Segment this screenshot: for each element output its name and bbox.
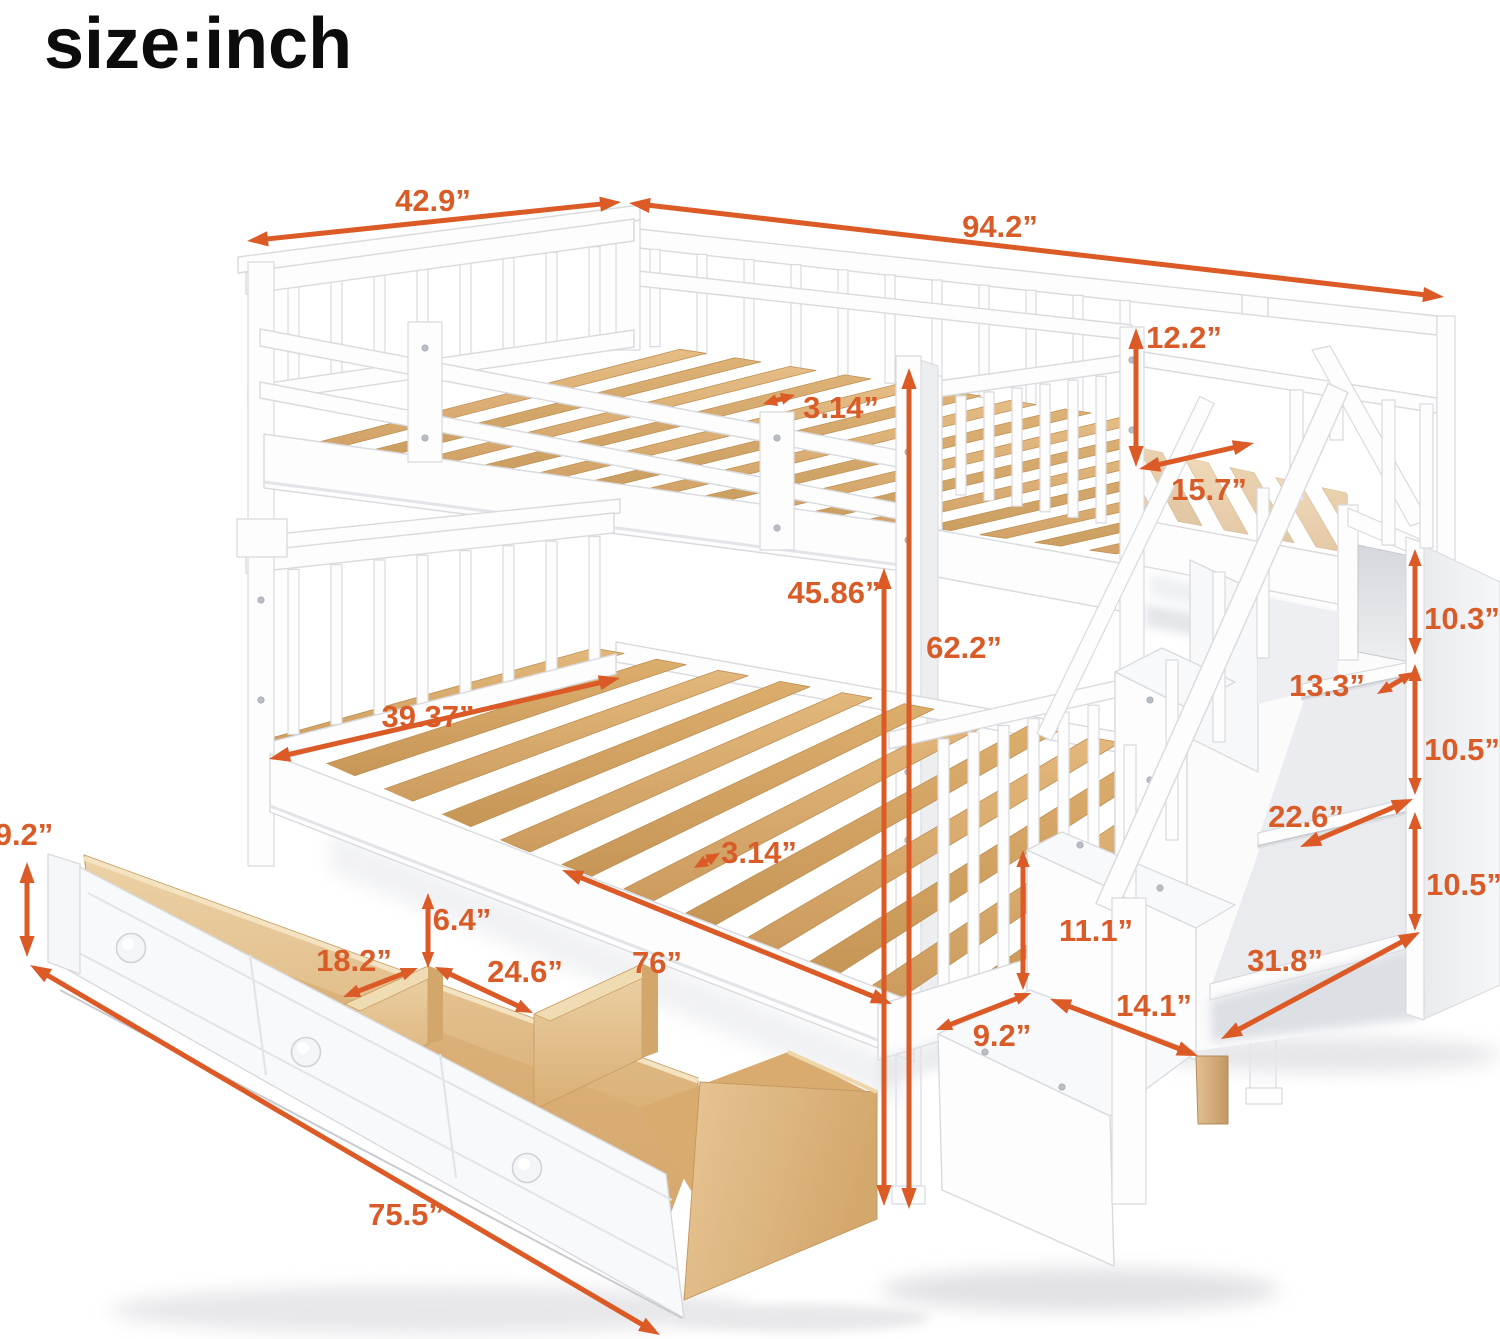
svg-text:22.6”: 22.6” bbox=[1268, 799, 1344, 834]
svg-text:12.2”: 12.2” bbox=[1146, 320, 1222, 355]
svg-text:10.5”: 10.5” bbox=[1424, 732, 1500, 767]
svg-text:13.3”: 13.3” bbox=[1289, 668, 1365, 703]
svg-text:10.3”: 10.3” bbox=[1424, 601, 1500, 636]
svg-text:9.2”: 9.2” bbox=[0, 817, 53, 852]
svg-text:45.86”: 45.86” bbox=[787, 575, 880, 610]
svg-text:size:inch: size:inch bbox=[44, 4, 352, 84]
svg-text:39.37”: 39.37” bbox=[381, 699, 474, 734]
svg-text:24.6”: 24.6” bbox=[487, 954, 563, 989]
svg-text:3.14”: 3.14” bbox=[803, 390, 879, 425]
svg-text:76”: 76” bbox=[632, 945, 682, 980]
svg-text:42.9”: 42.9” bbox=[395, 183, 471, 218]
svg-text:14.1”: 14.1” bbox=[1116, 988, 1192, 1023]
svg-text:75.5”: 75.5” bbox=[368, 1197, 444, 1232]
svg-text:15.7”: 15.7” bbox=[1171, 472, 1247, 507]
svg-text:94.2”: 94.2” bbox=[962, 209, 1038, 244]
svg-text:31.8”: 31.8” bbox=[1247, 943, 1323, 978]
svg-text:6.4”: 6.4” bbox=[433, 902, 492, 937]
svg-text:3.14”: 3.14” bbox=[721, 835, 797, 870]
svg-text:11.1”: 11.1” bbox=[1059, 913, 1133, 948]
svg-text:18.2”: 18.2” bbox=[316, 943, 392, 978]
svg-text:10.5”: 10.5” bbox=[1426, 867, 1500, 902]
svg-text:9.2”: 9.2” bbox=[973, 1018, 1032, 1053]
svg-text:62.2”: 62.2” bbox=[926, 630, 1002, 665]
